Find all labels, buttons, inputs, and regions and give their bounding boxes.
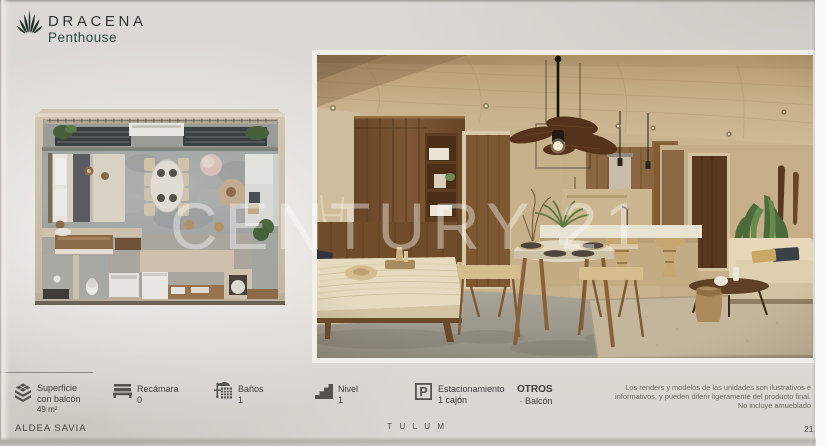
svg-text:P: P [419, 385, 427, 399]
